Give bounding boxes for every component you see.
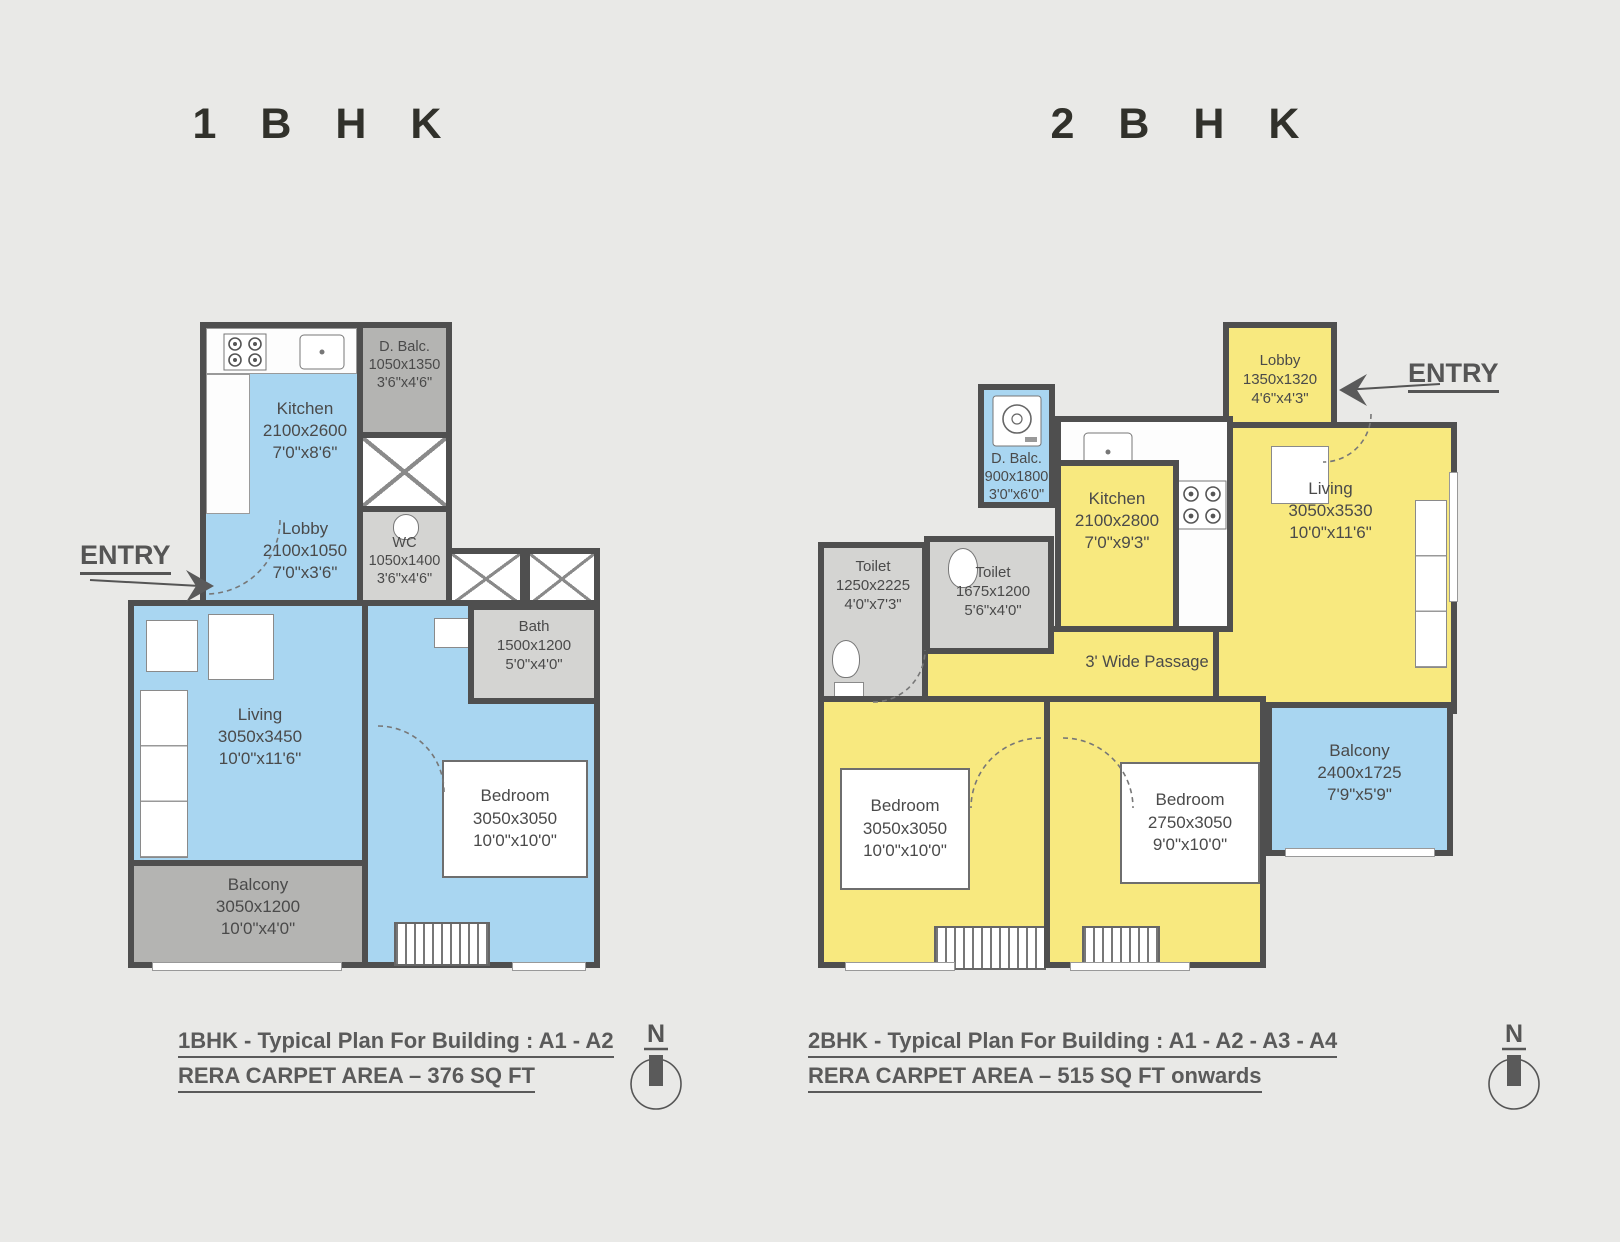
window — [1285, 848, 1435, 857]
svg-text:N: N — [647, 1020, 665, 1048]
plan-1bhk: Kitchen 2100x2600 7'0"x8'6" Lobby 2100x1… — [128, 322, 600, 974]
wc-label: WC 1050x1400 3'6"x4'6" — [357, 534, 452, 588]
window — [152, 962, 342, 971]
bed-with-label: Bedroom 3050x3050 10'0"x10'0" — [442, 760, 588, 878]
window — [512, 962, 586, 971]
plan1-title: 1 B H K — [145, 100, 505, 149]
balcony-label: Balcony 2400x1725 7'9"x5'9" — [1266, 740, 1453, 806]
bath-label: Bath 1500x1200 5'0"x4'0" — [468, 618, 600, 675]
plan2-caption: 2BHK - Typical Plan For Building : A1 - … — [808, 1028, 1337, 1058]
washing-machine-icon — [992, 395, 1042, 447]
toilet-a-label: Toilet 1250x2225 4'0"x7'3" — [818, 558, 928, 615]
duct-shaft — [357, 432, 452, 512]
kitchen-label: Kitchen 2100x2800 7'0"x9'3" — [1049, 488, 1185, 554]
toilet-fixture-icon — [832, 640, 860, 678]
passage-label: 3' Wide Passage — [1077, 652, 1217, 673]
wardrobe-icon — [394, 922, 490, 966]
north-compass-icon: N — [1478, 1018, 1550, 1114]
sink-icon — [299, 334, 345, 370]
north-compass-icon: N — [620, 1018, 692, 1114]
plan2-title: 2 B H K — [1003, 100, 1363, 149]
stove-icon — [223, 333, 267, 371]
window — [1449, 472, 1458, 602]
balcony-label: Balcony 3050x1200 10'0"x4'0" — [138, 874, 378, 940]
chair-icon — [146, 620, 198, 672]
window — [1070, 962, 1190, 971]
lobby-label: Lobby 1350x1320 4'6"x4'3" — [1217, 352, 1343, 409]
entry-arrow-icon — [88, 562, 223, 606]
svg-text:N: N — [1505, 1020, 1523, 1048]
living-label: Living 3050x3530 10'0"x11'6" — [1253, 478, 1408, 544]
bed-with-label: Bedroom 3050x3050 10'0"x10'0" — [840, 768, 970, 890]
plan2-rera-caption: RERA CARPET AREA – 515 SQ FT onwards — [808, 1063, 1262, 1093]
floorplan-sheet: 1 B H K 2 B H K — [0, 0, 1620, 1242]
plan1-caption: 1BHK - Typical Plan For Building : A1 - … — [178, 1028, 614, 1058]
kitchen-counter — [206, 328, 357, 374]
sofa-icon — [1415, 500, 1447, 668]
window — [845, 962, 955, 971]
entry-arrow-icon — [1335, 368, 1445, 412]
living-room — [1213, 422, 1457, 714]
toilet-b-label: Toilet 1675x1200 5'6"x4'0" — [932, 564, 1054, 621]
sofa-single-icon — [208, 614, 274, 680]
plan1-rera-caption: RERA CARPET AREA – 376 SQ FT — [178, 1063, 535, 1093]
plan-2bhk: Lobby 1350x1320 4'6"x4'3" Living 3050x35… — [815, 322, 1460, 974]
living-label: Living 3050x3450 10'0"x11'6" — [180, 704, 340, 770]
bed-with-label: Bedroom 2750x3050 9'0"x10'0" — [1120, 762, 1260, 884]
dry-balcony-label: D. Balc. 1050x1350 3'6"x4'6" — [357, 338, 452, 392]
